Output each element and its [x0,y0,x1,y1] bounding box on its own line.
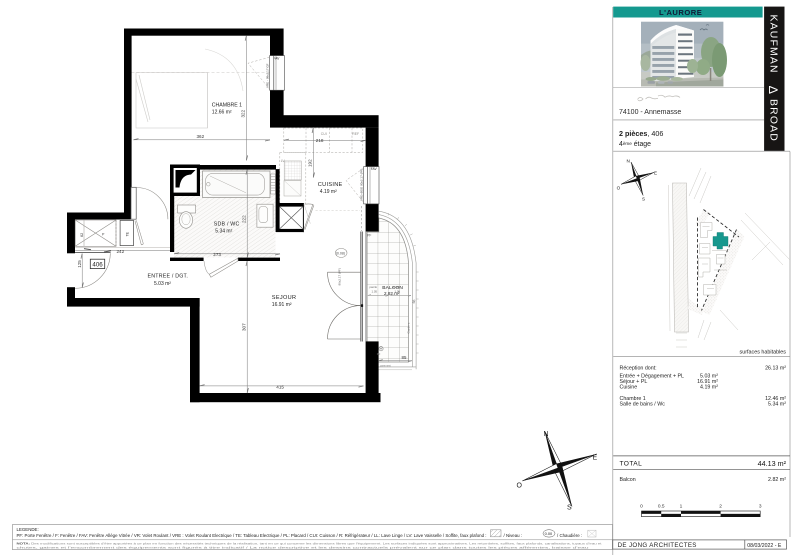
svg-text:LEGENDE:: LEGENDE: [17,527,39,532]
svg-text:CUI: CUI [321,132,327,136]
svg-text:Cuisine: Cuisine [620,384,638,390]
svg-text:96x2.17 (PF): 96x2.17 (PF) [338,268,342,285]
svg-text:BROAD: BROAD [768,99,779,142]
svg-text:273: 273 [213,252,221,257]
svg-text:PF: PF [367,233,371,237]
svg-text:0: 0 [640,504,643,510]
svg-text:DE JONG ARCHITECTES: DE JONG ARCHITECTES [618,542,697,549]
svg-text:ENTREE / DGT.: ENTREE / DGT. [148,273,189,279]
svg-text:CUISINE: CUISINE [318,182,343,188]
svg-text:5.03 m²: 5.03 m² [154,281,171,287]
svg-text:Réception dont:: Réception dont: [620,366,657,372]
svg-text:222: 222 [242,215,247,223]
svg-text:S: S [567,505,572,512]
svg-text:1: 1 [680,504,683,510]
svg-text:N: N [544,431,549,438]
svg-text:2: 2 [719,504,722,510]
svg-text:VRE+BSO 90x2.17 (PF): VRE+BSO 90x2.17 (PF) [360,169,364,201]
svg-text:(0.08): (0.08) [336,252,345,256]
svg-text:N: N [627,159,630,164]
svg-text:chutes, gaines et l'encombreme: chutes, gaines et l'encombrement des équ… [17,546,590,550]
svg-text:0.5: 0.5 [658,504,665,510]
svg-text:125: 125 [77,260,82,268]
svg-text:2 pièces, 406: 2 pièces, 406 [619,129,663,138]
svg-text:307: 307 [242,323,247,331]
svg-text:62: 62 [80,233,84,237]
svg-text:74100 - Annemasse: 74100 - Annemasse [619,109,681,116]
svg-text:26.13 m²: 26.13 m² [765,366,786,372]
svg-text:/ Chaudière :: / Chaudière : [557,533,582,538]
svg-text:PF: Porte Fenêtre / F: Fenêtre: PF: Porte Fenêtre / F: Fenêtre / FAV: Fe… [17,533,487,538]
svg-text:E: E [593,455,598,462]
svg-text:TOTAL: TOTAL [620,460,643,467]
svg-text:4ème étage: 4ème étage [619,140,651,148]
svg-text:O: O [517,483,523,490]
svg-text:362: 362 [197,134,205,139]
svg-text:242: 242 [117,249,125,254]
svg-text:L'AURORE: L'AURORE [659,8,702,17]
svg-text:surfaces habitables: surfaces habitables [740,349,787,355]
svg-text:PF: PF [377,352,381,356]
svg-text:FAV: FAV [273,56,280,60]
svg-text:322: 322 [241,109,246,117]
svg-text:O: O [617,186,621,191]
svg-text:4.19 m²: 4.19 m² [320,189,337,195]
svg-text:/ Niveau :: / Niveau : [504,533,523,538]
svg-text:∆: ∆ [766,86,780,94]
svg-text:Salle de bains / Wc: Salle de bains / Wc [620,402,666,408]
svg-text:12.66 m²: 12.66 m² [212,110,232,116]
svg-text:2.82 m²: 2.82 m² [768,477,786,483]
svg-text:REF: REF [352,132,359,136]
svg-text:415: 415 [276,384,284,389]
svg-text:3: 3 [759,504,762,510]
svg-text:FAV: FAV [371,167,378,171]
svg-text:44.13 m²: 44.13 m² [758,459,787,468]
svg-text:16.91 m²: 16.91 m² [272,302,292,308]
svg-text:5.34 m²: 5.34 m² [215,229,232,235]
svg-text:406: 406 [92,262,103,269]
svg-text:192: 192 [308,159,313,167]
svg-text:SDB / WC: SDB / WC [214,222,240,228]
svg-text:E: E [654,171,657,176]
svg-text:KAUFMAN: KAUFMAN [768,15,779,74]
svg-text:08/03/2022 - E: 08/03/2022 - E [747,543,782,549]
svg-text:85: 85 [402,355,407,360]
svg-text:Garde-c: Garde-c [406,322,410,333]
svg-text:218: 218 [316,138,324,143]
svg-text:Balcon: Balcon [620,477,636,483]
svg-text:1.05: 1.05 [372,289,378,293]
svg-text:VRE - 98x2.17 GF: VRE - 98x2.17 GF [265,63,269,88]
svg-text:1.05: 1.05 [395,289,401,293]
svg-text:4.19 m²: 4.19 m² [700,384,718,390]
svg-text:66: 66 [412,299,416,303]
svg-text:CHAMBRE 1: CHAMBRE 1 [212,103,242,109]
svg-text:SEJOUR: SEJOUR [272,295,297,301]
svg-text:parement: parement [380,363,391,367]
svg-text:0.00: 0.00 [545,531,553,536]
svg-text:TE: TE [125,231,129,236]
svg-text:5.34 m²: 5.34 m² [768,402,786,408]
svg-text:S: S [642,196,645,201]
